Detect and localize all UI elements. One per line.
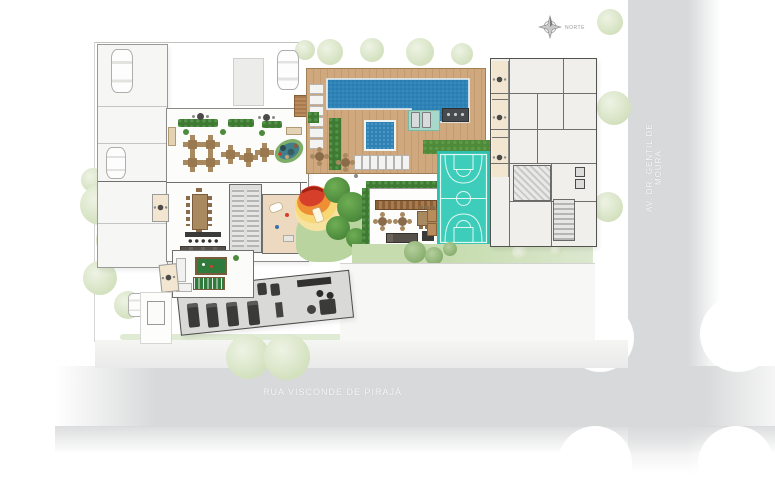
hedge: [362, 188, 369, 244]
curb-fillet: [700, 296, 775, 372]
treadmill: [206, 303, 219, 328]
unit-terrace: [159, 263, 180, 293]
forecourt: [340, 263, 595, 341]
bar-stools: [187, 239, 219, 243]
lounger: [309, 128, 324, 138]
balcony-strip: [492, 61, 509, 177]
tree: [317, 39, 343, 65]
car: [277, 50, 299, 90]
gym-machine: [319, 298, 336, 315]
planter: [228, 119, 254, 127]
bar-stools: [445, 112, 466, 117]
site-boundary-top: [95, 42, 307, 43]
potted-plant: [220, 129, 226, 135]
terrace-table: [188, 140, 197, 149]
shaft: [575, 167, 585, 177]
tree: [597, 91, 631, 125]
play-mat: [268, 201, 284, 214]
chair: [196, 188, 202, 192]
lounger: [309, 84, 324, 94]
unit-terrace: [152, 194, 169, 222]
stall-divider: [98, 143, 167, 144]
compass-rose-icon: [538, 15, 562, 39]
reception-kiosk: [147, 301, 165, 325]
wall: [491, 163, 596, 164]
toy-shelf: [283, 235, 294, 242]
terrace-table: [158, 205, 164, 211]
staircase: [229, 184, 262, 253]
treadmill: [226, 302, 239, 327]
stall-divider: [98, 223, 167, 224]
residential-tower: [490, 58, 597, 247]
tree: [443, 242, 457, 256]
terrace-table: [165, 274, 171, 280]
balcony-divider: [492, 99, 508, 100]
hedge: [366, 181, 442, 188]
garage-wing: [97, 44, 168, 268]
toy: [285, 213, 289, 217]
lounger: [309, 139, 324, 149]
chairs: [186, 196, 190, 226]
garden-feature: [272, 137, 306, 165]
compass: NORTE: [538, 15, 598, 41]
car: [111, 49, 133, 93]
potted-plant: [183, 129, 189, 135]
stair-steps: [232, 189, 244, 247]
terrace-table: [188, 158, 197, 167]
elevator-core: [513, 165, 551, 201]
dining-table: [192, 194, 208, 230]
deck-table: [315, 152, 324, 161]
lounger: [378, 155, 386, 170]
cafe-table: [263, 114, 270, 121]
tree: [406, 38, 434, 66]
court-bench: [427, 209, 437, 222]
shaft: [575, 179, 585, 189]
stall-divider: [98, 181, 167, 182]
lounger: [411, 112, 420, 128]
balcony-table: [497, 77, 503, 83]
lounger: [309, 95, 324, 105]
balcony-table: [497, 115, 503, 121]
lounger: [394, 155, 402, 170]
stair-steps: [247, 189, 259, 247]
terrace-table: [226, 150, 235, 159]
tree: [264, 334, 310, 380]
potted-plant: [259, 130, 265, 136]
balcony-table: [497, 155, 503, 161]
planter: [262, 121, 282, 128]
lounger: [354, 155, 362, 170]
tree: [593, 192, 623, 222]
bbq-table: [398, 217, 407, 226]
billiard-ball: [210, 265, 213, 268]
car: [106, 147, 126, 179]
cafe-table: [197, 113, 204, 120]
wall: [537, 93, 538, 163]
foosball-table: [193, 277, 225, 290]
entrance-walk: [140, 292, 172, 344]
terrace-table: [206, 140, 215, 149]
weight-plate: [316, 290, 324, 298]
street-fade-bottom: [55, 426, 775, 454]
hedge: [329, 118, 341, 170]
lounger: [370, 155, 378, 170]
site-plan: RUA VISCONDE DE PIRAJÁ AV. DR. GENTIL DE…: [0, 0, 775, 482]
wall: [563, 59, 564, 129]
billiard-ball: [202, 263, 205, 266]
ramp-block: [233, 58, 264, 106]
court-bench: [427, 223, 437, 236]
tree: [451, 43, 473, 65]
tree: [597, 9, 623, 35]
north-label: NORTE: [565, 25, 585, 31]
pool-bar: [442, 108, 469, 122]
toy: [275, 225, 279, 229]
chairs: [208, 196, 212, 226]
lounger: [362, 155, 370, 170]
stall-divider: [98, 106, 167, 107]
deck-table: [341, 158, 350, 167]
lounger: [402, 155, 410, 170]
tree: [360, 38, 384, 62]
wall: [491, 129, 596, 130]
treadmill: [247, 301, 260, 326]
tree: [404, 241, 426, 263]
lounger: [422, 112, 431, 128]
sports-court: [437, 151, 490, 246]
stepping-stone: [354, 174, 358, 178]
lounger: [386, 155, 394, 170]
gym-ball: [307, 305, 317, 315]
terrace-table: [206, 158, 215, 167]
street-label-right: AV. DR. GENTIL DE MOURA: [645, 108, 663, 228]
terrace-table: [244, 153, 253, 162]
party-room: [167, 183, 229, 257]
bench: [286, 127, 302, 135]
weight-bench: [275, 302, 284, 318]
planter: [178, 119, 218, 127]
treadmill: [187, 303, 200, 328]
kids-pool: [364, 120, 396, 151]
terrace-table: [260, 148, 269, 157]
wall: [551, 163, 552, 246]
planter: [308, 112, 319, 123]
tower-staircase: [553, 199, 575, 241]
billiards-table: [195, 257, 227, 275]
bench: [168, 127, 176, 146]
wall: [491, 93, 596, 94]
wall: [509, 59, 510, 246]
bar-counter: [185, 232, 221, 237]
potted-plant: [233, 255, 239, 261]
balcony-divider: [492, 137, 508, 138]
bbq-table: [378, 217, 387, 226]
exercise-bike: [270, 283, 280, 296]
dumbbell-rack: [297, 277, 332, 288]
exercise-bike: [257, 283, 267, 296]
street-label-bottom: RUA VISCONDE DE PIRAJÁ: [245, 387, 420, 397]
game-room: [172, 250, 254, 298]
sidewalk-strip: [95, 340, 628, 368]
